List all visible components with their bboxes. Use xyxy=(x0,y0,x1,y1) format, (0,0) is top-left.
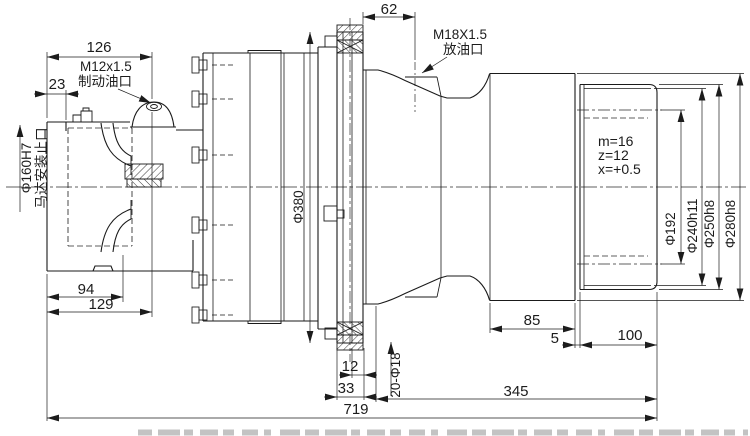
brake-thread-label: M12x1.5 xyxy=(80,59,132,74)
flange-bolt-side-view xyxy=(324,206,344,221)
dim-label-23: 23 xyxy=(49,76,66,93)
drain-thread-label: M18X1.5 xyxy=(433,27,487,42)
taper-profile-lower xyxy=(363,276,490,304)
cover-bolt xyxy=(192,147,235,163)
dome-hole-ellipse xyxy=(151,105,158,109)
cover-bolt xyxy=(192,57,235,73)
pitch-diameter-label: Φ192 xyxy=(663,212,678,245)
brake-port-leader xyxy=(118,89,151,103)
dim-label-12: 12 xyxy=(342,358,359,375)
housing-diameter-label: Φ380 xyxy=(291,190,306,223)
seal-block-lower xyxy=(127,179,161,187)
dim-label-85: 85 xyxy=(524,312,541,329)
bell-curve-lower-outer xyxy=(101,209,131,252)
gearbox-section-drawing: 126 23 M12x1.5 制动油口 62 M18X1.5 放油口 Φ160H… xyxy=(0,0,750,436)
seal-block-hatched xyxy=(125,164,163,179)
d250-label: Φ250h8 xyxy=(702,200,717,248)
cover-bolt xyxy=(192,217,235,233)
drain-port-leader xyxy=(422,57,447,73)
seal-blocks xyxy=(125,164,163,187)
dim-label-126: 126 xyxy=(86,39,111,56)
bell-curve-lower-inner xyxy=(113,219,131,252)
bell-curve-upper-outer xyxy=(101,123,131,166)
d280-label: Φ280h8 xyxy=(723,200,738,248)
drain-port-flat-edge-b xyxy=(437,278,441,297)
taper-profile-upper xyxy=(363,70,490,98)
dim-label-345: 345 xyxy=(503,383,528,400)
brake-port-label: 制动油口 xyxy=(78,74,132,89)
cover-bolt xyxy=(192,91,235,107)
housing-cover-bolts xyxy=(192,57,235,323)
motor-mount-label: 马达安装止口 xyxy=(34,128,49,209)
dome-boss-ellipse xyxy=(147,102,162,110)
drain-port-label: 放油口 xyxy=(443,42,484,57)
d240-label: Φ240h11 xyxy=(685,199,700,254)
engineering-drawing-page: 126 23 M12x1.5 制动油口 62 M18X1.5 放油口 Φ160H… xyxy=(0,0,750,436)
dim-label-129: 129 xyxy=(88,296,113,313)
dim-label-5: 5 xyxy=(551,330,559,347)
flange-bolt-bottom-section xyxy=(325,322,363,350)
dim-label-33: 33 xyxy=(338,380,355,397)
motor-mount-diameter-label: Φ160H7 xyxy=(19,143,34,194)
cover-bolt xyxy=(192,272,235,288)
labels: 126 23 M12x1.5 制动油口 62 M18X1.5 放油口 Φ160H… xyxy=(19,1,738,418)
top-fitting xyxy=(73,108,92,122)
dim-label-62: 62 xyxy=(381,1,398,18)
flange-bolt-top-section xyxy=(325,25,363,53)
dim-label-100: 100 xyxy=(617,327,642,344)
bottom-lug xyxy=(93,266,113,271)
brake-port-dome xyxy=(132,102,174,127)
holes-label: 20-Φ18 xyxy=(388,352,403,397)
dim-label-719: 719 xyxy=(343,401,368,418)
ring-gear-flange xyxy=(318,25,363,350)
gear-shift-label: x=+0.5 xyxy=(598,161,641,177)
drain-port-flat-edge xyxy=(437,77,441,96)
